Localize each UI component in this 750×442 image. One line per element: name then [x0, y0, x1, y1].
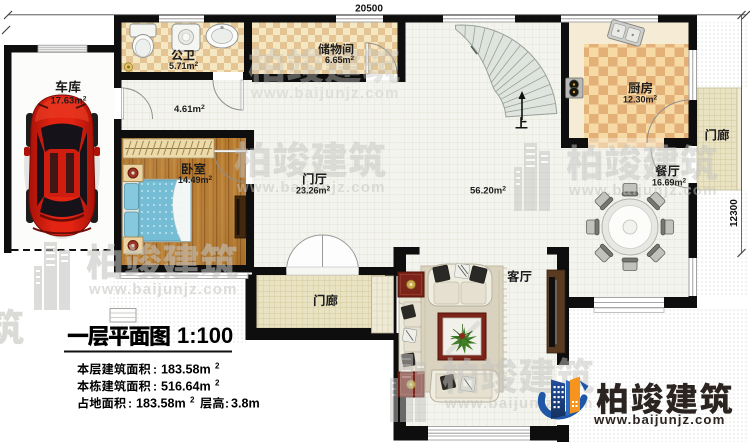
svg-text:23.26m2: 23.26m2	[296, 186, 331, 196]
svg-text:www.baijunjz.com: www.baijunjz.com	[88, 281, 238, 298]
svg-text:14.49m2: 14.49m2	[178, 175, 213, 185]
svg-text::: :	[153, 380, 157, 394]
svg-text::: :	[128, 397, 132, 411]
svg-text:516.64m: 516.64m	[161, 380, 211, 394]
svg-text:www.baijunjz.com: www.baijunjz.com	[593, 412, 725, 427]
svg-text::: :	[225, 397, 229, 411]
svg-text:2: 2	[215, 379, 220, 388]
svg-text:17.63m2: 17.63m2	[51, 96, 87, 107]
svg-text:6.65m2: 6.65m2	[325, 55, 355, 65]
svg-text:183.58m: 183.58m	[136, 397, 186, 411]
svg-text:12.30m2: 12.30m2	[623, 95, 658, 105]
svg-text:4.61m2: 4.61m2	[174, 104, 205, 115]
svg-text:20500: 20500	[355, 4, 383, 15]
svg-text:12300: 12300	[729, 199, 740, 227]
svg-text:16.69m2: 16.69m2	[652, 178, 687, 188]
svg-text:1:100: 1:100	[177, 323, 233, 348]
svg-text:www.baijunjz.com: www.baijunjz.com	[250, 85, 400, 102]
svg-text:2: 2	[190, 396, 195, 405]
svg-text::: :	[153, 363, 157, 377]
svg-text:www.baijunjz.com: www.baijunjz.com	[568, 182, 718, 199]
svg-text:56.20m2: 56.20m2	[470, 186, 506, 197]
svg-text:5.71m2: 5.71m2	[169, 61, 199, 71]
svg-text:183.58m: 183.58m	[161, 363, 211, 377]
svg-text:3.8m: 3.8m	[231, 397, 260, 411]
svg-text:2: 2	[215, 362, 220, 371]
